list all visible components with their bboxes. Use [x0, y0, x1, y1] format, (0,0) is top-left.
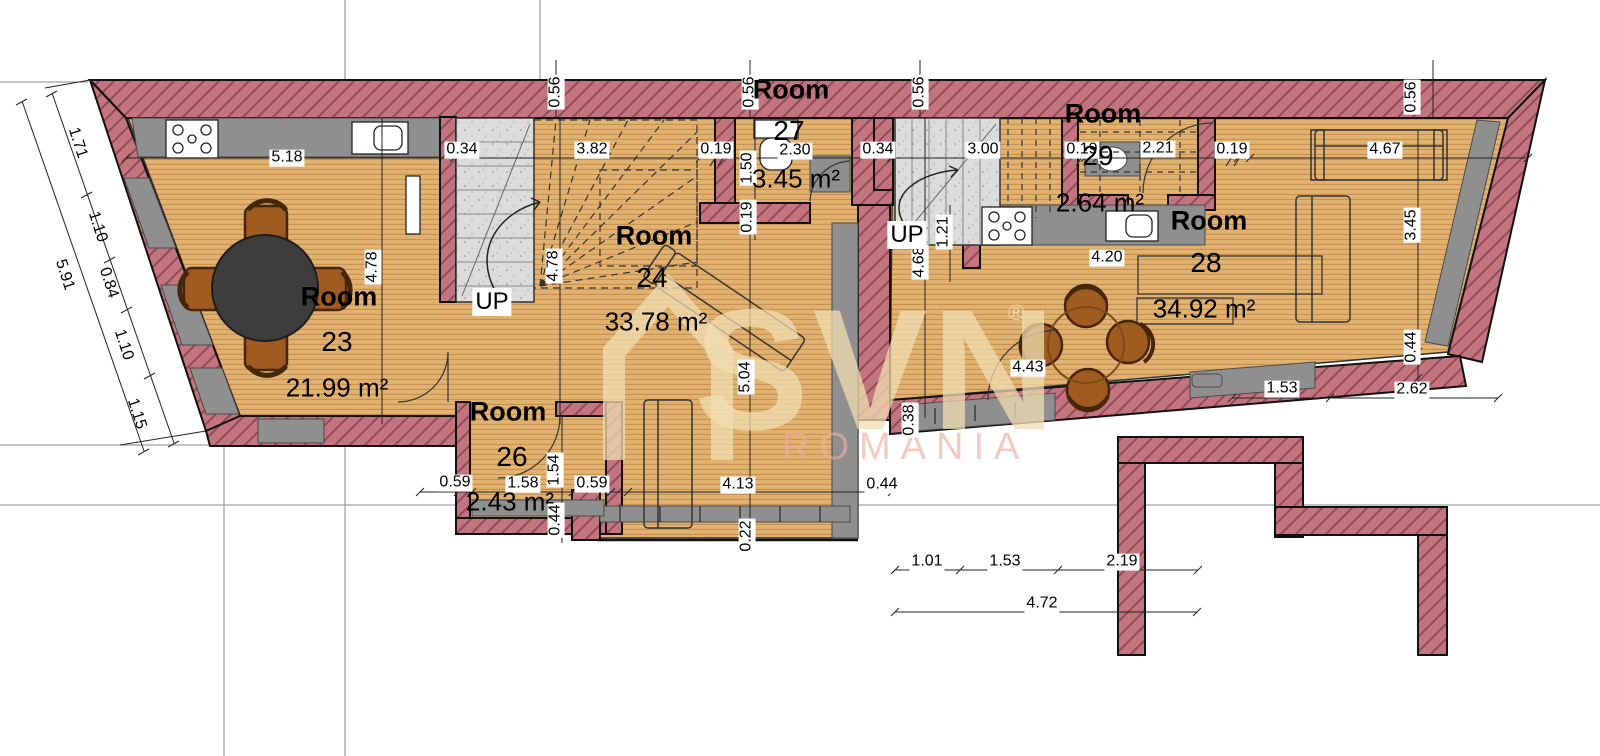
- ext-stair-bar2: [1418, 535, 1447, 655]
- room-24-name: Room: [616, 221, 693, 252]
- window-room23-bottom: [258, 419, 324, 443]
- dimension-label: 0.34: [444, 142, 479, 159]
- radiator-room23: [406, 176, 420, 234]
- room-27-name: Room: [753, 75, 830, 106]
- dimension-label: 3.45: [1404, 207, 1421, 242]
- wall-room27-left: [715, 118, 735, 205]
- dimension-label: 5.04: [738, 359, 755, 394]
- room-26-name: Room: [470, 397, 547, 428]
- dimension-label: 0.38: [902, 402, 919, 437]
- room-28-number: 28: [1190, 247, 1221, 279]
- dimension-label: 4.67: [1367, 142, 1402, 159]
- dimension-label: 4.72: [1024, 596, 1059, 613]
- dimension-label: 1.53: [1264, 381, 1299, 398]
- dimension-label: 1.54: [547, 452, 564, 487]
- room-29-area: 2.64 m²: [1056, 188, 1144, 219]
- floor-plan-drawing: [0, 0, 1600, 756]
- dimension-label: 2.21: [1140, 141, 1175, 158]
- dimension-label: 4.78: [546, 248, 563, 283]
- dimension-label: 3.00: [965, 142, 1000, 159]
- dimension-label: 0.19: [698, 142, 733, 159]
- dimension-label: 0.59: [574, 476, 609, 493]
- room-23-name: Room: [301, 282, 378, 313]
- dimension-label: 0.56: [548, 74, 565, 109]
- dimension-label: 0.44: [1404, 329, 1421, 364]
- stove-left-icon: [166, 120, 218, 158]
- dimension-label: 0.56: [912, 74, 929, 109]
- ext-stair-bar1: [1118, 437, 1145, 655]
- room-27-area: 3.45 m²: [752, 164, 840, 195]
- wall-room29-right: [1198, 118, 1215, 195]
- room-24-number: 24: [636, 262, 667, 294]
- room-26-number: 26: [496, 441, 527, 473]
- stair-up-label-1: UP: [472, 288, 511, 316]
- dimension-label: 0.44: [864, 477, 899, 494]
- dimension-label: 3.82: [574, 142, 609, 159]
- room-23-number: 23: [321, 326, 352, 358]
- room-24-area: 33.78 m²: [605, 307, 708, 338]
- room-23-area: 21.99 m²: [286, 373, 389, 404]
- room-27-number: 27: [773, 115, 804, 147]
- dimension-label: 0.19: [1214, 142, 1249, 159]
- dimension-label: 0.56: [1404, 79, 1421, 114]
- pillar: [1192, 374, 1222, 387]
- dimension-label: 1.01: [909, 554, 944, 571]
- floor-plan-canvas: SVN ® ROMANIA 5.180.343.820.192.300.343.…: [0, 0, 1600, 756]
- room-29-number: 29: [1082, 140, 1113, 172]
- wall-room26-top-stub: [556, 402, 606, 416]
- ext-stair-band1: [1118, 437, 1303, 463]
- dimension-label: 0.19: [740, 199, 757, 234]
- wall-party: [858, 185, 890, 420]
- stair-up-label-2: UP: [887, 221, 926, 249]
- dimension-label: 2.62: [1394, 382, 1429, 399]
- dimension-label: 4.13: [720, 477, 755, 494]
- dimension-label: 4.68: [912, 244, 929, 279]
- ext-stair-band2: [1275, 507, 1447, 535]
- room-28-name: Room: [1171, 206, 1248, 237]
- room-29-name: Room: [1065, 99, 1142, 130]
- party-wall-gray: [832, 223, 858, 538]
- wall-bottom-room23: [206, 416, 458, 446]
- dimension-label: 4.43: [1010, 360, 1045, 377]
- dimension-label: 4.20: [1089, 250, 1124, 267]
- dimension-label: 0.34: [860, 142, 895, 159]
- dimension-label: 1.21: [936, 214, 953, 249]
- dimension-label: 2.19: [1104, 554, 1139, 571]
- room-28-area: 34.92 m²: [1153, 294, 1256, 325]
- dimension-label: 5.18: [269, 150, 304, 167]
- dimension-label: 4.78: [365, 249, 382, 284]
- room-26-area: 2.43 m²: [466, 487, 554, 518]
- dimension-label: 0.22: [739, 518, 756, 553]
- balcony-sill: [600, 506, 850, 522]
- stove-right-icon: [982, 207, 1032, 245]
- dimension-label: 1.53: [987, 554, 1022, 571]
